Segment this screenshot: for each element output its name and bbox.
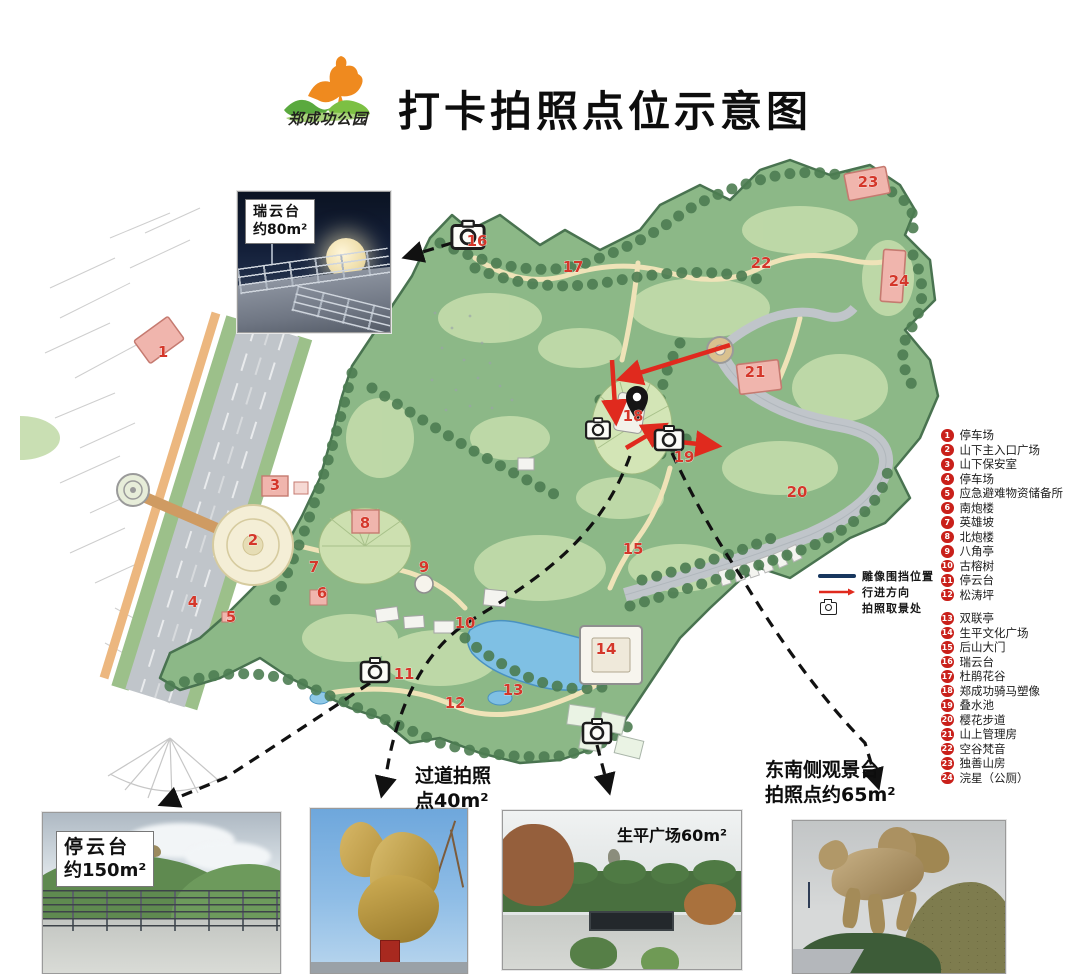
legend-number-badge: 2 xyxy=(941,444,954,457)
legend-number-badge: 13 xyxy=(941,612,954,625)
photo-ruiyuntai: 瑞云台 约80m² xyxy=(237,191,391,333)
legend-item-4: 4停车场 xyxy=(941,472,1079,487)
legend-number-badge: 7 xyxy=(941,516,954,529)
spot-name: 瑞云台 xyxy=(253,204,307,222)
golden-statue xyxy=(358,875,439,944)
map-marker-13: 13 xyxy=(503,681,524,699)
bush xyxy=(641,947,679,970)
legend-number-badge: 18 xyxy=(941,685,954,698)
tree xyxy=(651,863,689,884)
map-marker-8: 8 xyxy=(360,514,370,532)
camera-icon xyxy=(583,719,611,743)
map-marker-2: 2 xyxy=(248,531,258,549)
map-marker-1: 1 xyxy=(158,343,168,361)
legend-item-10: 10古榕树 xyxy=(941,559,1079,574)
map-marker-19: 19 xyxy=(674,448,695,466)
key-camera-label: 拍照取景处 xyxy=(862,600,922,616)
legend-label: 浣星（公厕） xyxy=(960,770,1029,786)
photo-corridor xyxy=(310,808,468,974)
map-marker-22: 22 xyxy=(751,254,772,272)
park-map: 123456789101112131415161718192021222324 xyxy=(20,138,945,810)
shengping-caption: 生平广场60m² xyxy=(617,826,727,847)
bush xyxy=(570,937,618,969)
map-marker-16: 16 xyxy=(467,232,488,250)
map-marker-6: 6 xyxy=(317,584,327,602)
legend-item-22: 22空谷梵音 xyxy=(941,742,1079,757)
southeast-caption: 东南侧观景台 拍照点约65m² xyxy=(765,758,896,807)
legend-number-badge: 14 xyxy=(941,627,954,640)
photo-southeast xyxy=(792,820,1006,974)
key-camera: 拍照取景处 xyxy=(818,600,938,616)
map-marker-20: 20 xyxy=(787,483,808,501)
page-title: 打卡拍照点位示意图 xyxy=(398,78,812,139)
legend-item-16: 16瑞云台 xyxy=(941,655,1079,670)
legend-number-badge: 24 xyxy=(941,772,954,785)
spot-name: 停云台 xyxy=(64,836,146,860)
parking-fan-lines xyxy=(108,738,220,800)
caption-line: 拍照点约65m² xyxy=(765,783,896,808)
map-marker-21: 21 xyxy=(745,363,766,381)
statue-leg xyxy=(867,893,886,934)
legend-list: 1停车场2山下主入口广场3山下保安室4停车场5应急避难物资储备所6南炮楼7英雄坡… xyxy=(941,428,1079,785)
photo-tingyuntai: 停云台 约150m² xyxy=(42,812,281,974)
legend-number-badge: 10 xyxy=(941,560,954,573)
legend-item-2: 2山下主入口广场 xyxy=(941,443,1079,458)
map-marker-9: 9 xyxy=(419,558,429,576)
legend-item-15: 15后山大门 xyxy=(941,640,1079,655)
legend-number-badge: 15 xyxy=(941,641,954,654)
map-marker-23: 23 xyxy=(858,173,879,191)
map-key: 雕像围挡位置 行进方向 拍照取景处 xyxy=(818,568,938,616)
legend-number-badge: 8 xyxy=(941,531,954,544)
tingyuntai-label: 停云台 约150m² xyxy=(56,831,154,887)
map-marker-14: 14 xyxy=(596,640,617,658)
ground xyxy=(311,962,467,973)
legend-item-14: 14生平文化广场 xyxy=(941,626,1079,641)
map-marker-5: 5 xyxy=(226,608,236,626)
legend-number-badge: 19 xyxy=(941,699,954,712)
key-direction: 行进方向 xyxy=(818,584,938,600)
legend-item-18: 18郑成功骑马塑像 xyxy=(941,684,1079,699)
statue-line-icon xyxy=(818,574,856,578)
legend-number-badge: 17 xyxy=(941,670,954,683)
legend-number-badge: 5 xyxy=(941,487,954,500)
key-statue-line: 雕像围挡位置 xyxy=(818,568,938,584)
legend-item-17: 17杜鹃花谷 xyxy=(941,669,1079,684)
memorial-wall xyxy=(589,911,674,931)
map-marker-4: 4 xyxy=(188,593,198,611)
legend-number-badge: 9 xyxy=(941,545,954,558)
legend-item-3: 3山下保安室 xyxy=(941,457,1079,472)
legend-item-11: 11停云台 xyxy=(941,573,1079,588)
camera-icon xyxy=(655,426,683,450)
caption-line: 过道拍照 xyxy=(415,764,491,789)
park-name: 郑成功公园 xyxy=(272,108,384,129)
tree xyxy=(603,860,646,884)
map-marker-7: 7 xyxy=(309,558,319,576)
legend-number-badge: 1 xyxy=(941,429,954,442)
legend-number-badge: 3 xyxy=(941,458,954,471)
corridor-caption: 过道拍照 点40m² xyxy=(415,764,491,813)
photo-shengping: 生平广场60m² xyxy=(502,810,742,970)
legend-item-7: 7英雄坡 xyxy=(941,515,1079,530)
legend-item-8: 8北炮楼 xyxy=(941,530,1079,545)
legend-number-badge: 11 xyxy=(941,574,954,587)
legend-number-badge: 4 xyxy=(941,473,954,486)
key-statue-label: 雕像围挡位置 xyxy=(862,568,934,584)
legend-item-20: 20樱花步道 xyxy=(941,713,1079,728)
camera-icon xyxy=(820,602,837,615)
autumn-bush xyxy=(684,884,736,925)
spot-area: 约150m² xyxy=(64,860,146,883)
ruiyuntai-label: 瑞云台 约80m² xyxy=(245,199,315,244)
legend-item-12: 12松涛坪 xyxy=(941,588,1079,603)
map-marker-3: 3 xyxy=(270,476,280,494)
map-marker-24: 24 xyxy=(889,272,910,290)
camera-icon xyxy=(586,418,610,438)
legend-label: 松涛坪 xyxy=(960,587,995,603)
camera-icon xyxy=(361,658,389,682)
tree xyxy=(693,860,736,884)
legend-number-badge: 20 xyxy=(941,714,954,727)
railing xyxy=(42,890,281,932)
legend-number-badge: 23 xyxy=(941,757,954,770)
branch xyxy=(450,829,464,887)
legend-item-21: 21山上管理房 xyxy=(941,727,1079,742)
map-marker-18: 18 xyxy=(623,407,644,425)
legend-number-badge: 12 xyxy=(941,589,954,602)
lamp-post xyxy=(808,882,810,908)
legend-item-1: 1停车场 xyxy=(941,428,1079,443)
legend-item-9: 9八角亭 xyxy=(941,544,1079,559)
spot-area: 约80m² xyxy=(253,222,307,240)
autumn-tree xyxy=(502,824,574,906)
map-marker-15: 15 xyxy=(623,540,644,558)
legend-number-badge: 21 xyxy=(941,728,954,741)
legend-item-23: 23独善山房 xyxy=(941,756,1079,771)
map-marker-12: 12 xyxy=(445,694,466,712)
caption-line: 东南侧观景台 xyxy=(765,758,896,783)
legend-item-13: 13双联亭 xyxy=(941,611,1079,626)
legend-item-19: 19叠水池 xyxy=(941,698,1079,713)
map-marker-17: 17 xyxy=(563,258,584,276)
key-direction-label: 行进方向 xyxy=(862,584,910,600)
legend-number-badge: 6 xyxy=(941,502,954,515)
legend-item-6: 6南炮楼 xyxy=(941,501,1079,516)
direction-arrow-icon xyxy=(818,587,856,597)
legend-number-badge: 22 xyxy=(941,743,954,756)
legend-number-badge: 16 xyxy=(941,656,954,669)
map-marker-11: 11 xyxy=(394,665,415,683)
legend-item-24: 24浣星（公厕） xyxy=(941,771,1079,786)
legend-item-5: 5应急避难物资储备所 xyxy=(941,486,1079,501)
caption-line: 点40m² xyxy=(415,789,491,814)
map-marker-10: 10 xyxy=(455,614,476,632)
